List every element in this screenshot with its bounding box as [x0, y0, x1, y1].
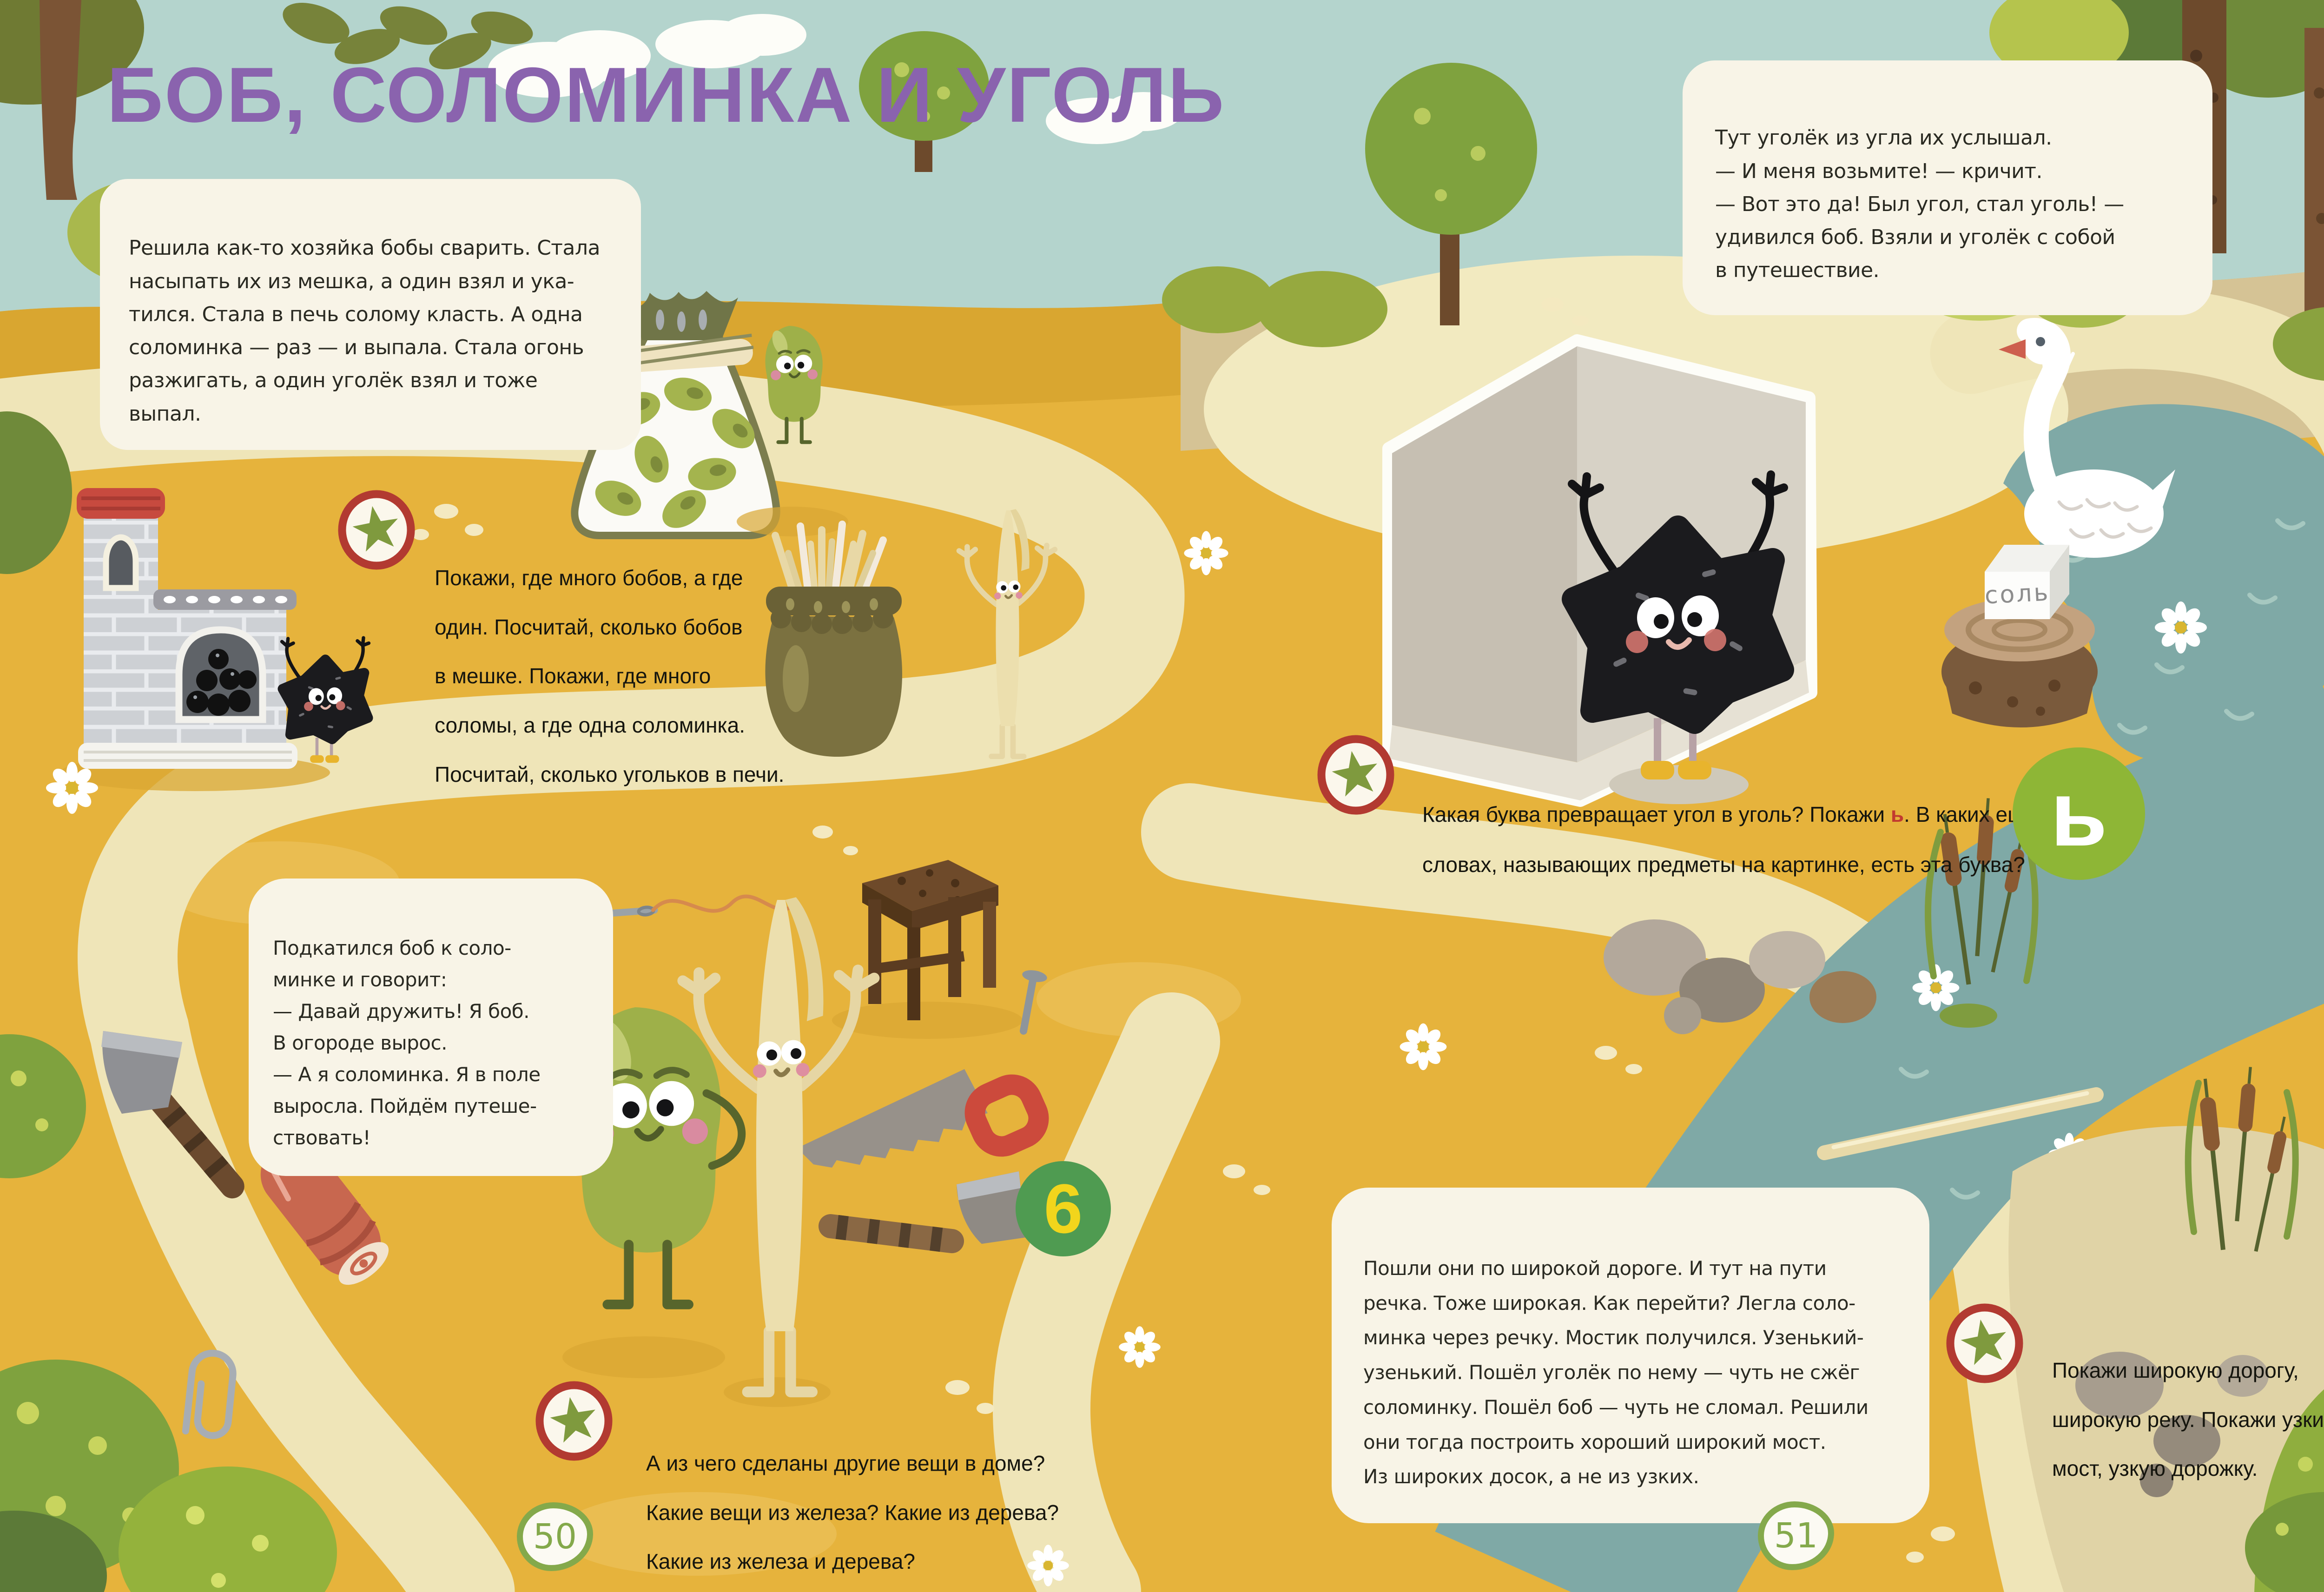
page-number-right-value: 51: [1774, 1516, 1818, 1556]
page-number-left-value: 50: [533, 1517, 577, 1557]
big-bean-shadow: [562, 1336, 725, 1378]
story-river-box: Пошли они по широкой дороге. И тут на пу…: [1332, 1188, 1929, 1523]
soft-sign-circle: ь: [2013, 747, 2145, 880]
task-count-text: Покажи, где много бобов, а где один. Пос…: [435, 566, 784, 786]
salt-label: соль: [1983, 578, 2052, 609]
stool-shadow: [832, 1002, 1023, 1039]
star-icon: [342, 494, 411, 566]
story-coal-box: Тут уголёк из угла их услышал. — И меня …: [1683, 60, 2212, 315]
story-dialog-box: Подкатился боб к соло- минке и говорит: …: [249, 879, 613, 1176]
task-wide-narrow: Покажи широкую дорогу, широкую реку. Пок…: [2052, 1297, 2324, 1493]
task-letter: Какая буква превращает угол в уголь? Пок…: [1422, 739, 2096, 890]
soft-sign-letter: ь: [2050, 760, 2107, 867]
scene-number: 6: [1044, 1169, 1083, 1249]
star-icon: [1950, 1308, 2019, 1379]
task-letter-char: ь: [1891, 802, 1904, 826]
story-river-text: Пошли они по широкой дороге. И тут на пу…: [1363, 1257, 1868, 1488]
task-count: Покажи, где много бобов, а где один. Пос…: [435, 504, 816, 799]
page-title: БОБ, СОЛОМИНКА И УГОЛЬ: [107, 50, 1225, 140]
story-dialog-text: Подкатился боб к соло- минке и говорит: …: [273, 937, 541, 1149]
task-materials-text: А из чего сделаны другие вещи в доме? Ка…: [646, 1451, 1059, 1574]
star-icon: [540, 1385, 608, 1457]
story-intro-box: Решила как-то хозяйка бобы сварить. Стал…: [100, 179, 641, 450]
story-intro-text: Решила как-то хозяйка бобы сварить. Стал…: [129, 236, 600, 425]
task-letter-before: Какая буква превращает угол в уголь? Пок…: [1422, 802, 1891, 826]
star-icon: [1321, 739, 1390, 811]
task-materials: А из чего сделаны другие вещи в доме? Ка…: [646, 1390, 1102, 1586]
book-spread: БОБ, СОЛОМИНКА И УГОЛЬ Решила как-то хоз…: [0, 0, 2324, 1592]
story-coal-text: Тут уголёк из угла их услышал. — И меня …: [1715, 126, 2124, 282]
scene-number-circle: 6: [1016, 1161, 1111, 1256]
task-wide-narrow-text: Покажи широкую дорогу, широкую реку. Пок…: [2052, 1358, 2324, 1481]
